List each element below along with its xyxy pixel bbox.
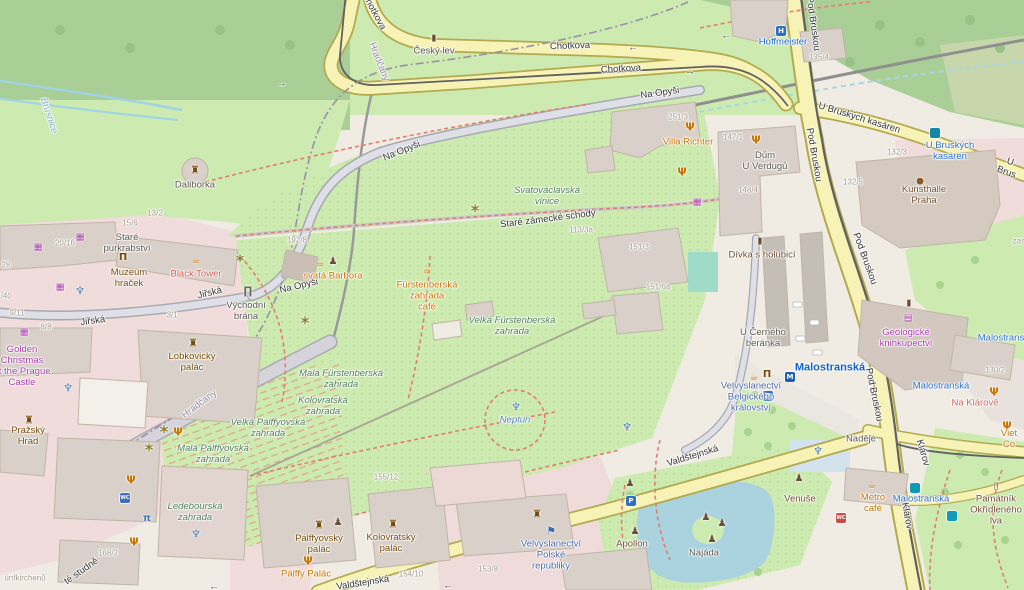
map-tiles <box>0 0 1024 590</box>
map-canvas[interactable]: ▮HΨΨΨΨΨΨΨΨΨ☕☕☕☕☕ΠΠ▮▮▯♟♟♟♟♟♟♟♟▦▦▦▦▦▤●♆♆♆♆… <box>0 0 1024 590</box>
